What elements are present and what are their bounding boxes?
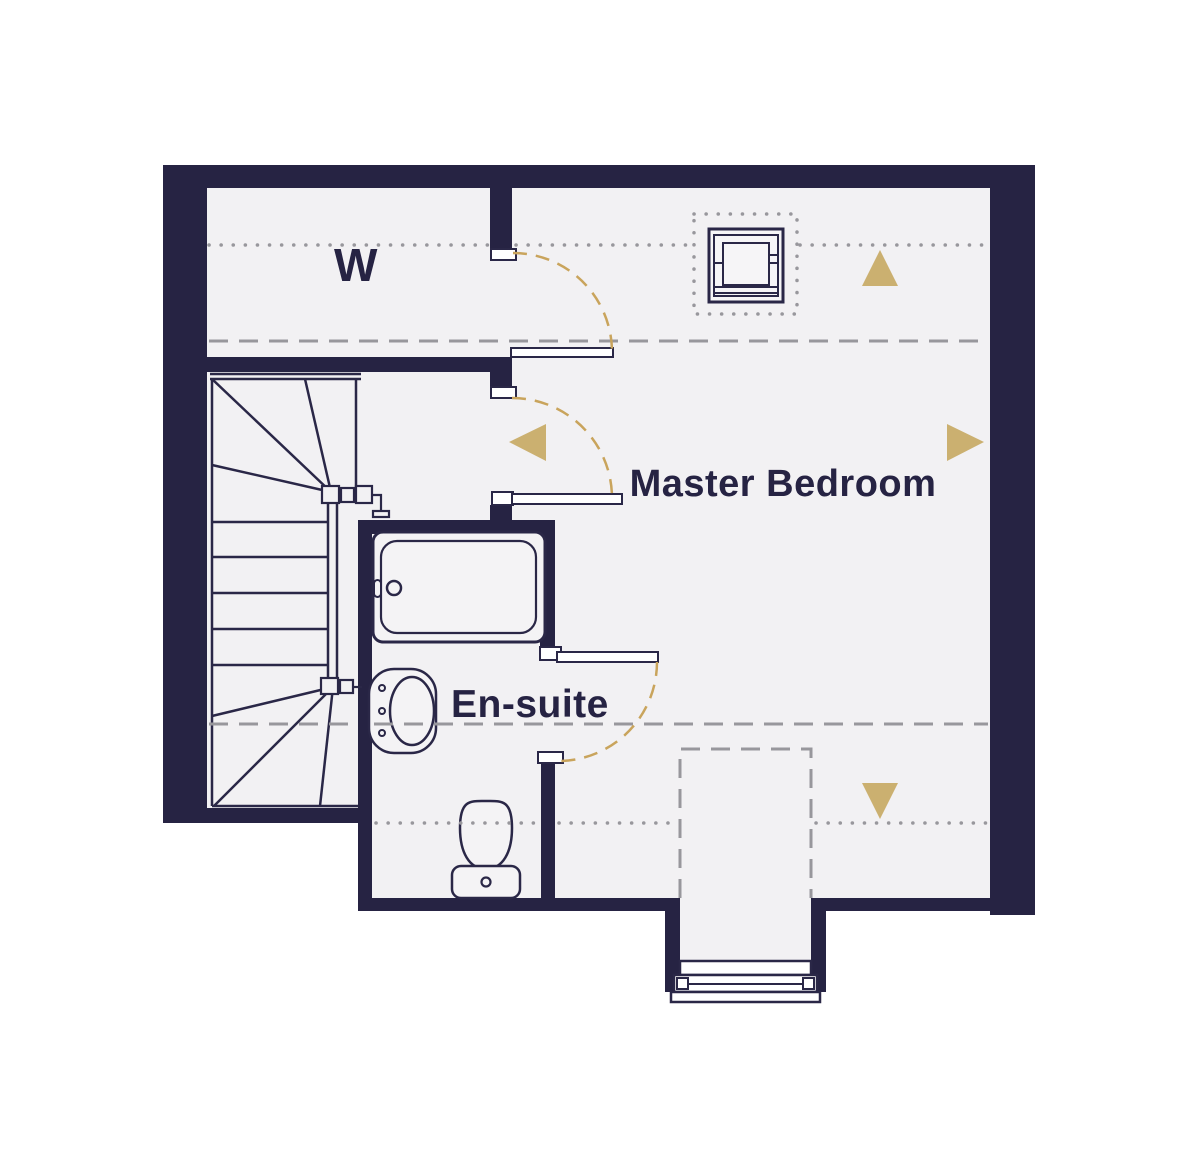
roof-slope-arrows <box>509 250 984 819</box>
roof-arrow-left-icon <box>509 424 546 461</box>
newel-posts-top <box>322 486 389 517</box>
toilet <box>452 801 520 898</box>
staircase <box>210 374 389 806</box>
wardrobe-label: W <box>334 242 378 288</box>
wardrobe-door-swing <box>513 253 612 352</box>
roof-arrow-up-icon <box>862 250 898 286</box>
floor-plan: W Master Bedroom En-suite <box>0 0 1200 1167</box>
newel-posts-bottom <box>321 678 362 694</box>
bathtub <box>373 532 545 642</box>
plan-drawing-layer <box>0 0 1200 1167</box>
roof-arrow-right-icon <box>947 424 984 461</box>
dormer-window <box>671 961 820 1002</box>
washbasin <box>369 669 436 753</box>
master-bedroom-label: Master Bedroom <box>603 460 963 509</box>
skylight-window <box>694 214 797 314</box>
ensuite-label: En-suite <box>451 685 609 724</box>
roof-arrow-down-icon <box>862 783 898 819</box>
dormer-outline <box>680 749 811 898</box>
